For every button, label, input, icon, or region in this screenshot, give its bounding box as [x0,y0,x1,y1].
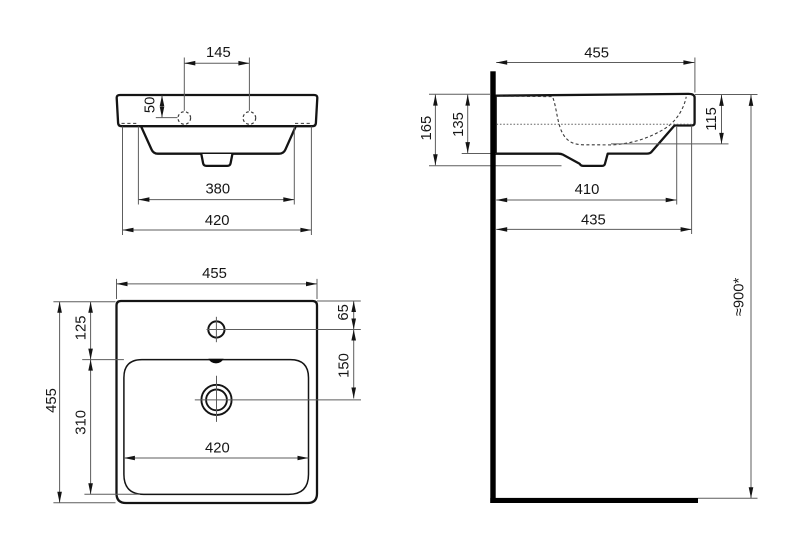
svg-text:50: 50 [142,97,158,113]
svg-text:455: 455 [202,266,227,282]
svg-text:455: 455 [44,388,60,413]
svg-text:435: 435 [581,213,606,229]
svg-text:420: 420 [205,440,230,456]
svg-text:115: 115 [704,107,720,131]
svg-text:145: 145 [206,45,231,61]
svg-text:125: 125 [74,316,90,341]
svg-text:310: 310 [73,410,89,435]
svg-text:65: 65 [336,304,352,320]
svg-text:455: 455 [584,45,609,61]
svg-text:≈900*: ≈900* [732,277,748,316]
svg-text:420: 420 [205,213,230,229]
svg-text:150: 150 [337,353,353,378]
svg-text:380: 380 [205,181,230,197]
svg-text:135: 135 [451,112,467,137]
svg-text:410: 410 [575,182,600,198]
svg-text:165: 165 [419,116,435,141]
